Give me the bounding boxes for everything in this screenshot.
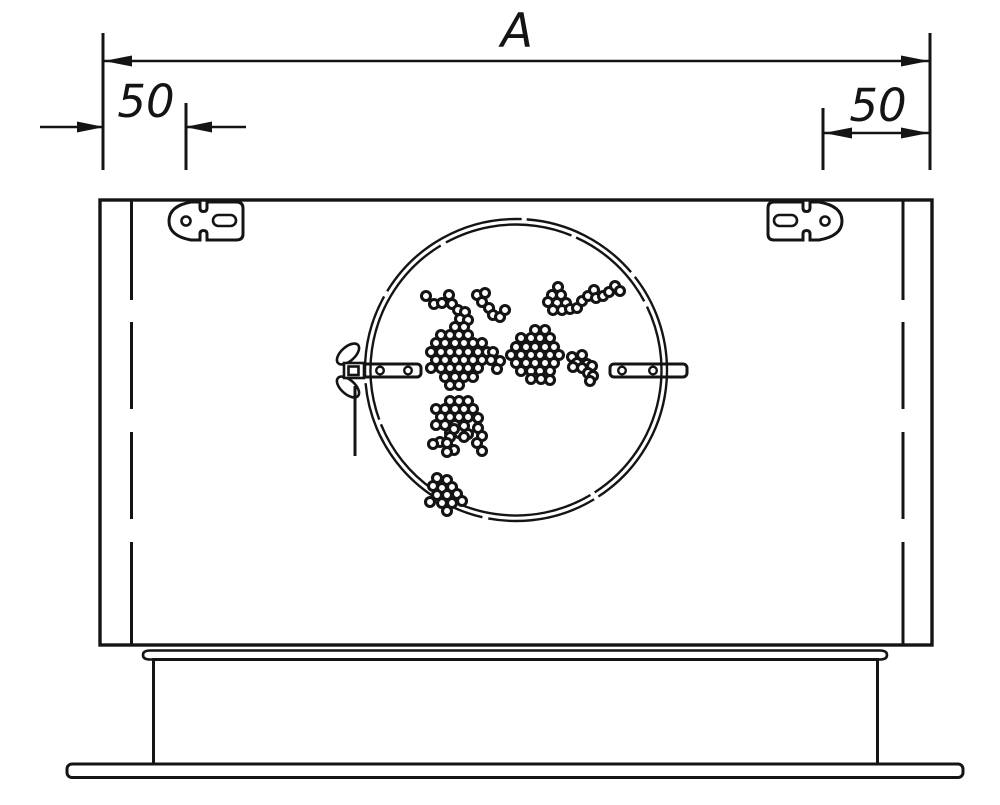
perforation-hole <box>426 498 435 507</box>
perforation-hole <box>536 334 545 343</box>
arrowhead-left-icon <box>824 128 852 139</box>
perforation-hole <box>427 364 436 373</box>
perforation-hole <box>586 377 595 386</box>
perforation-hole <box>474 364 483 373</box>
wing-nut <box>333 340 364 456</box>
perforation-hole <box>422 292 431 301</box>
main-body <box>100 200 932 645</box>
arrowhead-left-icon <box>185 122 212 133</box>
bracket-slot-hole <box>774 215 797 226</box>
rivet <box>618 367 626 375</box>
perforation-hole <box>460 433 469 442</box>
collar <box>154 660 878 765</box>
perforation-hole <box>443 507 452 516</box>
bottom-assembly <box>67 651 963 778</box>
plenum-box-drawing: A 50 50 <box>0 0 1000 805</box>
arrowhead-right-icon <box>77 122 104 133</box>
perforation-hole <box>455 381 464 390</box>
bracket-round-hole <box>182 217 191 226</box>
perforation-hole <box>616 287 625 296</box>
technical-drawing-canvas: A 50 50 <box>0 0 1000 805</box>
base-plate <box>67 764 963 778</box>
dimension-label-left-50: 50 <box>117 75 174 128</box>
rivet <box>404 367 412 375</box>
bracket-slot-hole <box>213 215 236 226</box>
rivet <box>376 367 384 375</box>
arrowhead-left-icon <box>104 56 132 67</box>
dimension-label-right-50: 50 <box>849 79 906 132</box>
perforation-hole <box>458 497 467 506</box>
bracket-plate <box>169 202 243 240</box>
arrowhead-right-icon <box>901 56 929 67</box>
dimension-right-inset: 50 <box>823 79 929 170</box>
damper-handle-bar-right <box>610 364 687 377</box>
perforation-hole <box>517 367 526 376</box>
perforation-hole <box>517 334 526 343</box>
perforation-hole <box>546 376 555 385</box>
perforation-hole <box>478 447 487 456</box>
perforation-hole <box>443 448 452 457</box>
perforation-hole <box>429 440 438 449</box>
body-outline <box>100 200 932 645</box>
mounting-bracket-right <box>768 202 842 240</box>
perforation-hole <box>501 306 510 315</box>
rivet <box>649 367 657 375</box>
perforation-hole <box>493 365 502 374</box>
perforation-hole <box>469 373 478 382</box>
mounting-bracket-left <box>169 202 243 240</box>
bracket-plate <box>768 202 842 240</box>
dimension-label-a: A <box>498 4 533 59</box>
perforation-pattern <box>422 282 625 516</box>
dimension-left-inset: 50 <box>40 75 246 170</box>
perforation-hole <box>474 414 483 423</box>
dimension-overall-width: A <box>103 4 930 170</box>
perforation-hole <box>438 299 447 308</box>
bracket-round-hole <box>821 217 830 226</box>
perforation-hole <box>527 375 536 384</box>
